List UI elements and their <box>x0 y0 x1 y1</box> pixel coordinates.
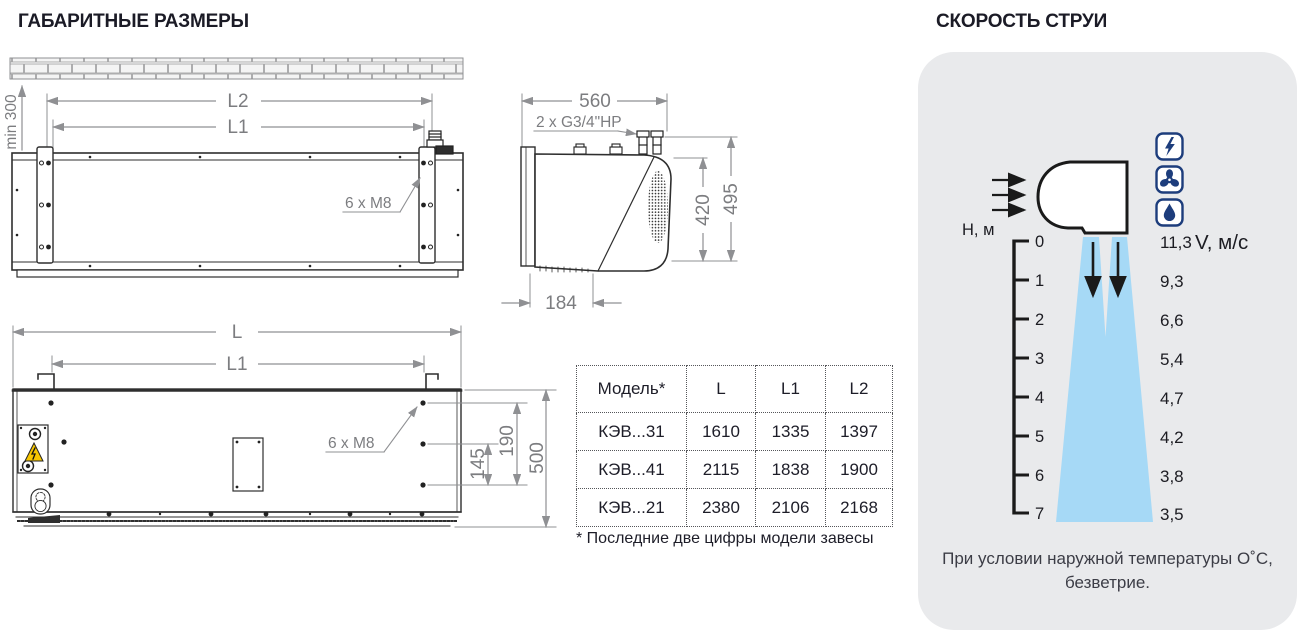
col-header-l1: L1 <box>756 366 826 413</box>
bottom-view-drawing: L L1 <box>13 322 556 527</box>
dim-label-184: 184 <box>545 293 577 314</box>
bolt-note-front: 6 x M8 <box>345 195 392 212</box>
air-jet-cone <box>1056 237 1153 522</box>
wall-section <box>10 58 463 79</box>
mounting-bracket-right <box>419 147 435 263</box>
cell-model: КЭВ...21 <box>577 489 687 527</box>
drop-icon <box>1157 200 1183 226</box>
air-curtain-unit <box>1038 162 1127 233</box>
tick-label: 0 <box>1035 233 1044 251</box>
table-header-row: Модель* L L1 L2 <box>577 366 893 413</box>
cell-model: КЭВ...41 <box>577 451 687 489</box>
dim-label-420: 420 <box>693 194 714 226</box>
page-title-jet-speed: СКОРОСТЬ СТРУИ <box>936 11 1107 33</box>
cell-model: КЭВ...31 <box>577 413 687 451</box>
note-line-1: При условии наружной температуры О˚С, <box>918 547 1297 571</box>
jet-speed-chart: H, м 0 1 2 3 4 5 6 7 11,3 9,3 <box>918 52 1297 630</box>
col-header-model: Модель* <box>577 366 687 413</box>
perforated-grille <box>648 171 668 243</box>
dim-label-l: L <box>232 322 243 343</box>
height-axis-label: H, м <box>962 221 994 239</box>
velocity-value: 3,5 <box>1160 505 1184 524</box>
velocity-value: 9,3 <box>1160 272 1184 291</box>
col-header-l: L <box>687 366 756 413</box>
velocity-value: 5,4 <box>1160 350 1184 369</box>
table-footnote: * Последние две цифры модели завесы <box>576 530 873 548</box>
dim-label-500: 500 <box>527 442 548 474</box>
front-view-drawing: min 300 L2 L1 <box>3 86 463 277</box>
note-line-2: безветрие. <box>918 571 1297 595</box>
dim-label-l2: L2 <box>227 91 248 112</box>
dim-label-560: 560 <box>579 91 611 112</box>
table-row: КЭВ...31 1610 1335 1397 <box>577 413 893 451</box>
dim-label-min300: min 300 <box>3 94 20 150</box>
cell-l1: 1838 <box>756 451 826 489</box>
hook-right <box>426 374 438 389</box>
dim-label-l1-front: L1 <box>227 117 248 138</box>
model-dimensions-table: Модель* L L1 L2 КЭВ...31 1610 1335 1397 … <box>576 365 893 527</box>
cell-l: 2115 <box>687 451 756 489</box>
velocity-unit-label: V, м/с <box>1195 231 1248 254</box>
velocity-value: 4,7 <box>1160 389 1184 408</box>
bolt-note-bottom: 6 x M8 <box>328 435 375 452</box>
table-row: КЭВ...21 2380 2106 2168 <box>577 489 893 527</box>
tick-label: 6 <box>1035 467 1044 485</box>
tick-label: 2 <box>1035 311 1044 329</box>
tick-label: 3 <box>1035 350 1044 368</box>
dim-label-145: 145 <box>468 448 489 480</box>
cell-l2: 1397 <box>826 413 893 451</box>
dim-label-l1-bottom: L1 <box>226 354 247 375</box>
velocity-values: 11,3 9,3 6,6 5,4 4,7 4,2 3,8 3,5 <box>1160 233 1192 524</box>
tick-label: 1 <box>1035 272 1044 290</box>
cell-l1: 1335 <box>756 413 826 451</box>
mounting-bracket-left <box>37 147 53 263</box>
cable-gland <box>31 489 50 514</box>
jet-speed-note: При условии наружной температуры О˚С, бе… <box>918 547 1297 595</box>
pipe-note: 2 x G3/4"HP <box>536 114 622 131</box>
tick-label: 7 <box>1035 505 1044 523</box>
dim-label-190: 190 <box>497 425 518 457</box>
velocity-value: 3,8 <box>1160 467 1184 486</box>
intake-arrows <box>992 180 1024 210</box>
dim-label-495: 495 <box>721 183 742 215</box>
cell-l2: 1900 <box>826 451 893 489</box>
tick-label: 4 <box>1035 389 1044 407</box>
col-header-l2: L2 <box>826 366 893 413</box>
grille-shadow <box>28 515 60 523</box>
axis-ticks <box>1014 241 1029 513</box>
jet-speed-panel: H, м 0 1 2 3 4 5 6 7 11,3 9,3 <box>918 52 1297 630</box>
velocity-value: 6,6 <box>1160 311 1184 330</box>
cell-l2: 2168 <box>826 489 893 527</box>
access-panel <box>233 438 263 491</box>
electrical-box <box>18 425 48 473</box>
fan-icon <box>1157 167 1183 193</box>
lightning-icon <box>1157 134 1183 160</box>
axis-tick-labels: 0 1 2 3 4 5 6 7 <box>1035 233 1044 523</box>
tick-label: 5 <box>1035 428 1044 446</box>
table-row: КЭВ...41 2115 1838 1900 <box>577 451 893 489</box>
velocity-value: 11,3 <box>1160 233 1192 252</box>
datasheet-page: ГАБАРИТНЫЕ РАЗМЕРЫ СКОРОСТЬ СТРУИ <box>0 0 1308 643</box>
side-view-drawing: 560 2 x G3/4"HP <box>502 91 742 314</box>
cell-l: 1610 <box>687 413 756 451</box>
cell-l1: 2106 <box>756 489 826 527</box>
velocity-value: 4,2 <box>1160 428 1184 447</box>
cell-l: 2380 <box>687 489 756 527</box>
hook-left <box>38 374 54 389</box>
